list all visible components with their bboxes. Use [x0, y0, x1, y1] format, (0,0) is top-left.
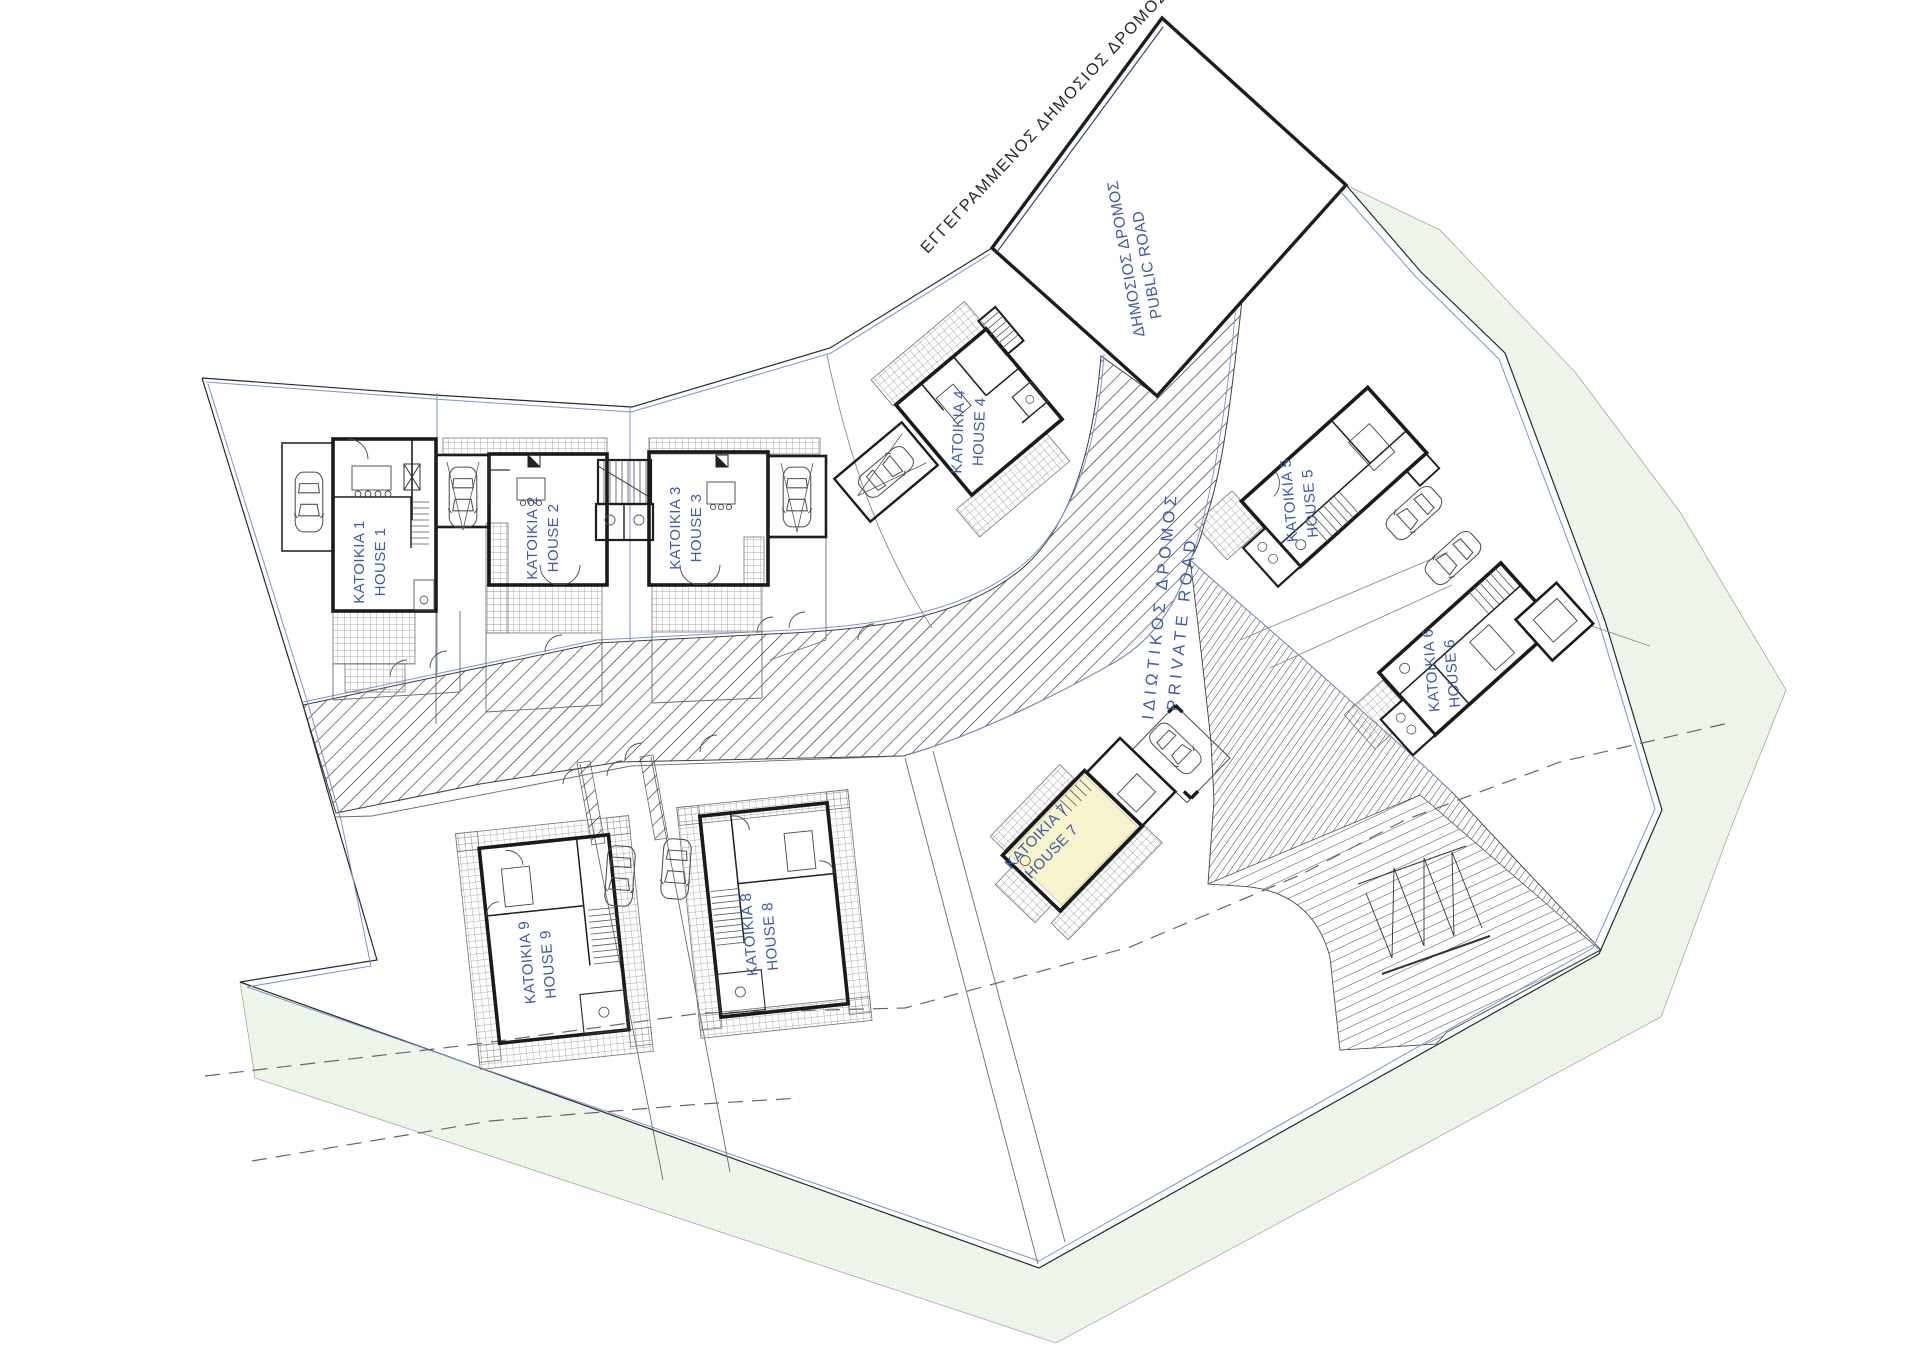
svg-text:ΚΑΤΟΙΚΙΑ 1: ΚΑΤΟΙΚΙΑ 1 [351, 520, 368, 603]
svg-text:HOUSE 2: HOUSE 2 [545, 504, 562, 573]
svg-text:ΚΑΤΟΙΚΙΑ 4: ΚΑΤΟΙΚΙΑ 4 [949, 390, 969, 474]
svg-text:HOUSE 1: HOUSE 1 [372, 528, 389, 597]
svg-text:ΚΑΤΟΙΚΙΑ 2: ΚΑΤΟΙΚΙΑ 2 [524, 496, 541, 579]
svg-text:ΚΑΤΟΙΚΙΑ 3: ΚΑΤΟΙΚΙΑ 3 [667, 486, 684, 569]
svg-text:HOUSE 4: HOUSE 4 [970, 397, 989, 466]
svg-text:HOUSE 3: HOUSE 3 [688, 494, 705, 563]
